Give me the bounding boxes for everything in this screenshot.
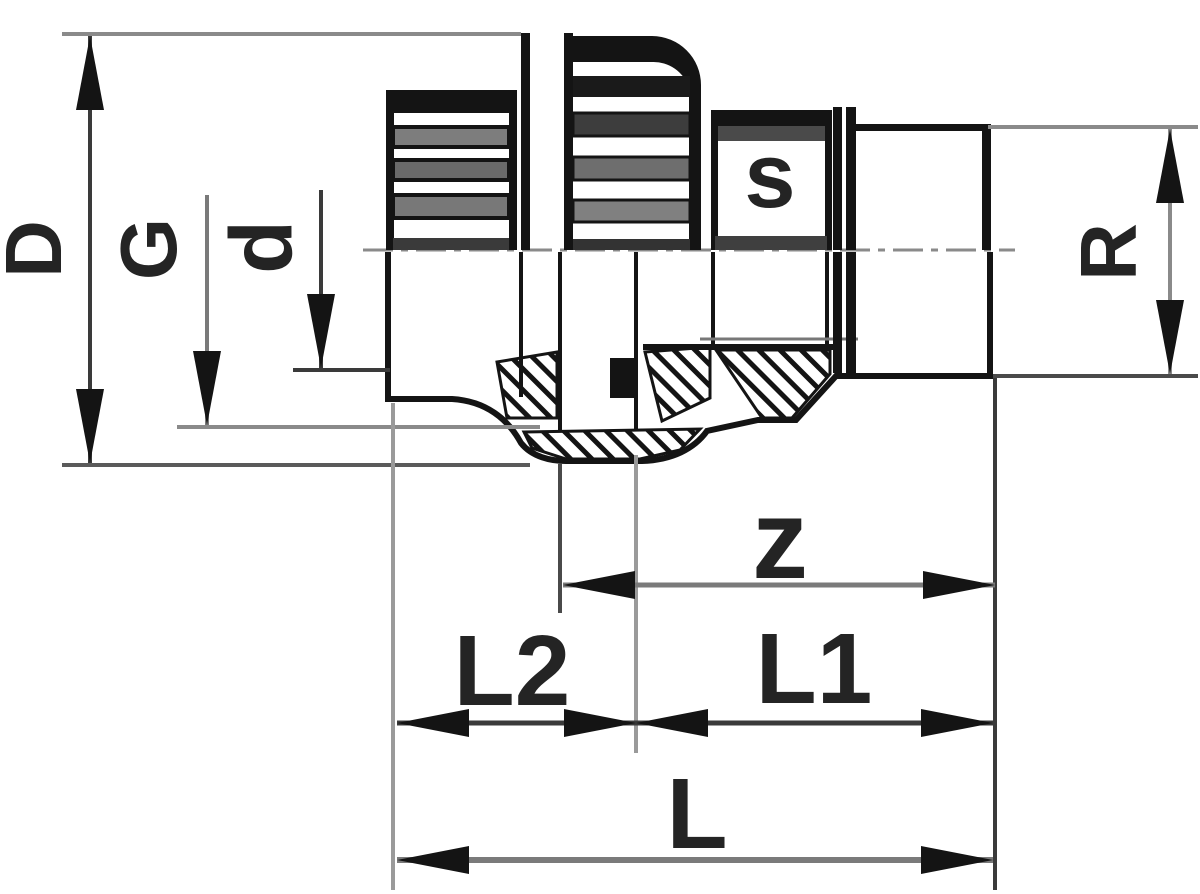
arrow-right-icon bbox=[923, 571, 995, 599]
arrow-right-icon bbox=[564, 709, 636, 737]
arrow-left-icon bbox=[397, 846, 469, 874]
pipe-union-fitting-drawing: s D bbox=[0, 0, 1200, 894]
arrow-down-icon bbox=[193, 351, 221, 425]
dimension-R: R bbox=[988, 127, 1198, 376]
arrow-down-icon bbox=[1156, 300, 1184, 374]
hex-section: s bbox=[711, 110, 832, 250]
section-hatch-under-hex bbox=[716, 350, 830, 418]
dimension-z: z bbox=[563, 477, 995, 602]
dimension-d: d bbox=[211, 190, 390, 370]
arrow-up-icon bbox=[76, 36, 104, 110]
arrow-right-icon bbox=[921, 846, 993, 874]
arrow-down-icon bbox=[76, 389, 104, 463]
socket-body bbox=[386, 90, 517, 250]
section-hatch-left bbox=[497, 352, 557, 418]
male-thread-label: R bbox=[1064, 223, 1153, 281]
arrow-down-icon bbox=[307, 294, 335, 368]
overall-length-label: L bbox=[666, 758, 727, 870]
arrow-left-icon bbox=[636, 709, 708, 737]
spanner-size-label: s bbox=[744, 125, 795, 227]
union-thread-label: G bbox=[104, 218, 193, 280]
l1-length-label: L1 bbox=[756, 613, 873, 725]
section-hatch-right bbox=[645, 347, 710, 421]
seal-section bbox=[610, 358, 636, 398]
arrow-up-icon bbox=[1156, 129, 1184, 203]
l2-length-label: L2 bbox=[454, 615, 571, 727]
outer-diameter-label: D bbox=[0, 220, 78, 278]
fitting-upper-half: s bbox=[386, 33, 991, 250]
z-length-label: z bbox=[752, 477, 808, 602]
fitting-lower-half-section bbox=[388, 252, 990, 461]
arrow-right-icon bbox=[921, 709, 993, 737]
dimension-L: L bbox=[397, 758, 993, 874]
arrow-left-icon bbox=[563, 571, 635, 599]
male-thread bbox=[833, 107, 991, 250]
socket-bore-label: d bbox=[211, 220, 310, 274]
technical-drawing-canvas: s D bbox=[0, 0, 1200, 894]
union-nut bbox=[521, 33, 701, 250]
dimension-L2-L1: L2 L1 bbox=[397, 613, 993, 737]
